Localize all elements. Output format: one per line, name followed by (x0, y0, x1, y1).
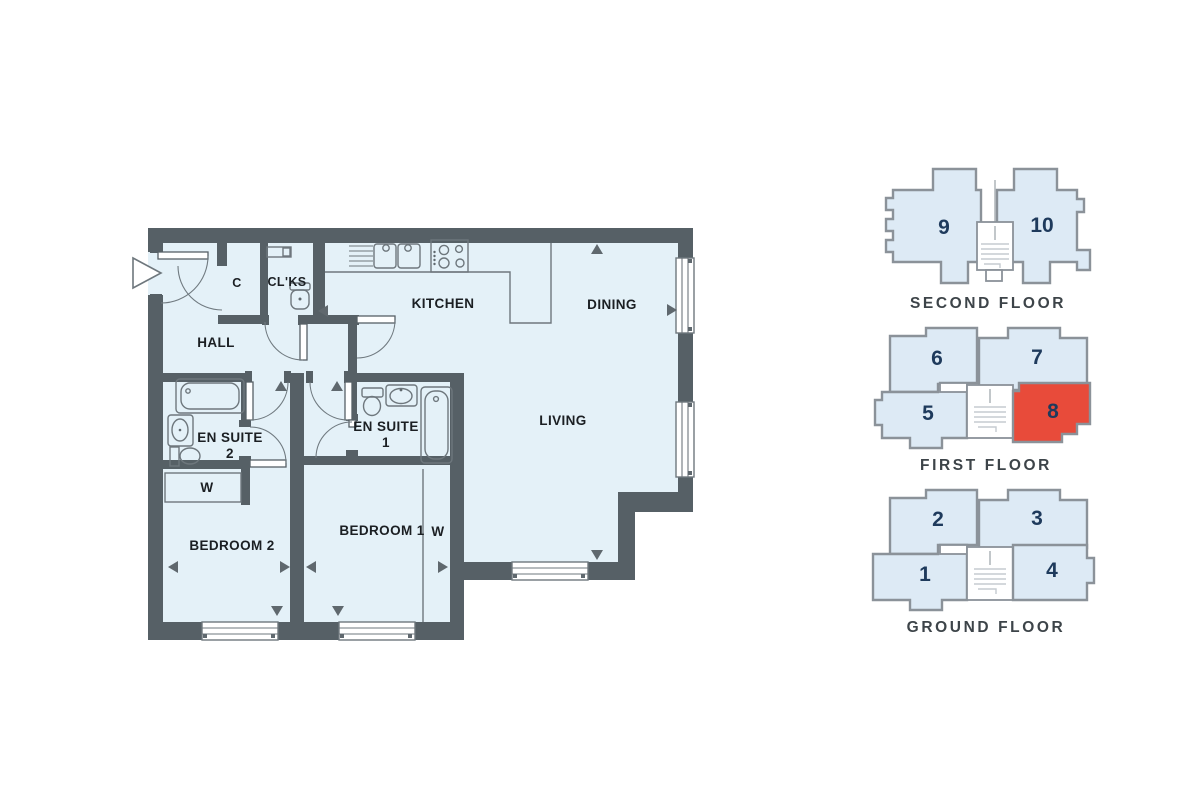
window-dining-right (676, 258, 694, 333)
unit-number-9: 9 (938, 216, 950, 240)
stair-core-second (977, 222, 1013, 281)
room-label-bedroom2: BEDROOM 2 (189, 538, 274, 554)
unit-number-8-highlighted: 8 (1047, 400, 1059, 424)
room-label-hall: HALL (197, 335, 235, 351)
room-label-cupboard: C (232, 275, 241, 291)
unit-number-10: 10 (1030, 214, 1053, 238)
floor-title-second: SECOND FLOOR (910, 295, 1066, 313)
floorplan-page: C CL'KS HALL KITCHEN DINING LIVING EN SU… (0, 0, 1200, 800)
unit-number-3: 3 (1031, 507, 1043, 531)
keyplan-ground-floor (873, 490, 1094, 610)
room-label-kitchen: KITCHEN (412, 296, 475, 312)
room-label-dining: DINING (587, 297, 637, 313)
unit-number-7: 7 (1031, 346, 1043, 370)
unit-number-4: 4 (1046, 559, 1058, 583)
room-label-cloaks: CL'KS (268, 274, 307, 290)
room-label-bedroom1: BEDROOM 1 (339, 523, 424, 539)
unit-9-shape (886, 169, 981, 283)
ensuite2-number: 2 (197, 446, 262, 462)
unit-number-1: 1 (919, 563, 931, 587)
room-label-ensuite2: EN SUITE 2 (197, 430, 262, 462)
unit-number-5: 5 (922, 402, 934, 426)
room-label-ensuite1: EN SUITE 1 (353, 419, 418, 451)
keyplan-first-floor (875, 328, 1090, 448)
ensuite1-number: 1 (353, 435, 418, 451)
floor-plan-drawing (0, 0, 1200, 800)
window-bedroom2 (202, 622, 278, 640)
stair-core-ground (967, 547, 1013, 600)
window-living-bottom (512, 562, 588, 580)
floor-title-first: FIRST FLOOR (920, 457, 1052, 475)
window-living-right (676, 402, 694, 477)
keyplan-second-floor (886, 169, 1090, 283)
ensuite1-name: EN SUITE (353, 419, 418, 435)
stair-core-first (967, 385, 1013, 438)
ensuite2-name: EN SUITE (197, 430, 262, 446)
wardrobe-label-bedroom2: W (200, 480, 213, 496)
room-label-living: LIVING (539, 413, 586, 429)
floor-title-ground: GROUND FLOOR (907, 619, 1066, 637)
unit-5-shape (875, 384, 967, 448)
unit-number-6: 6 (931, 347, 943, 371)
window-bedroom1 (339, 622, 415, 640)
unit-number-2: 2 (932, 508, 944, 532)
wardrobe-label-bedroom1: W (431, 524, 444, 540)
